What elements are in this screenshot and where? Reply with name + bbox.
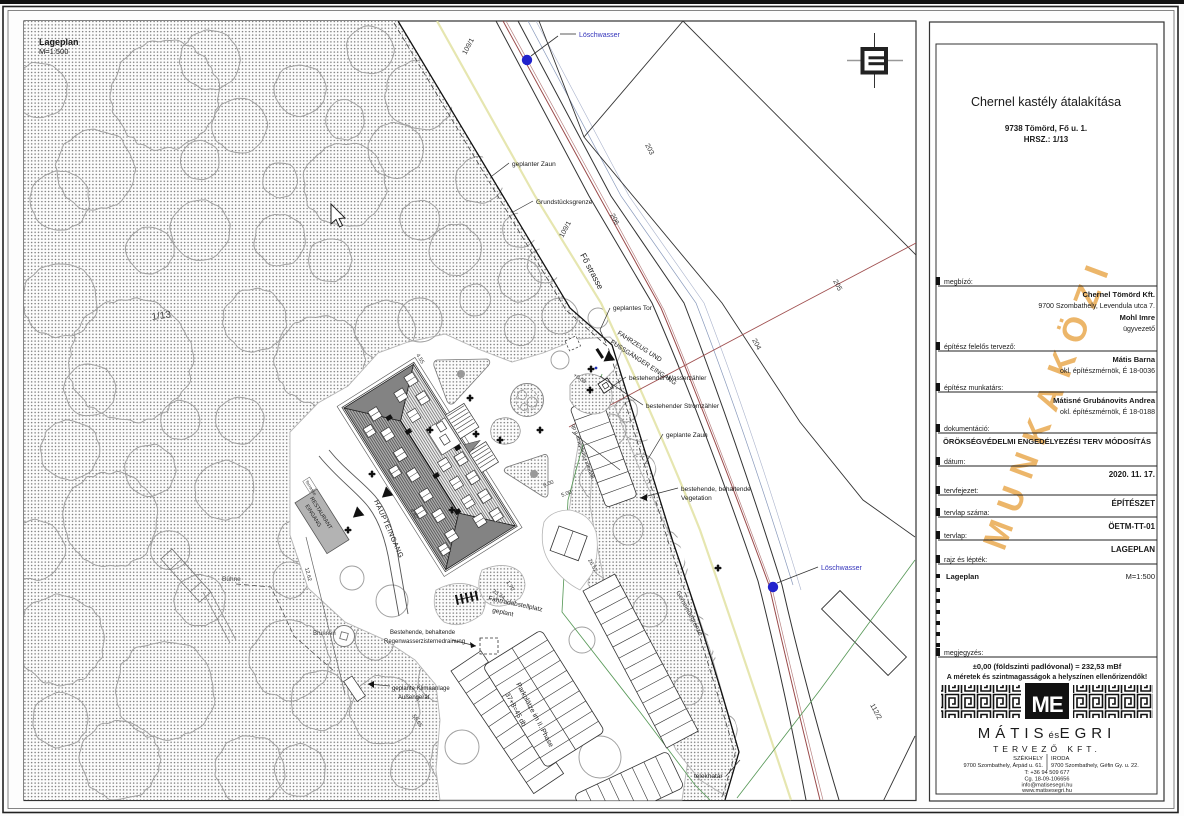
svg-text:tervfejezet:: tervfejezet: bbox=[944, 488, 978, 495]
svg-text:9700 Szombathely, Levendula ut: 9700 Szombathely, Levendula utca 7. bbox=[1038, 303, 1155, 310]
svg-text:2020. 11. 17.: 2020. 11. 17. bbox=[1109, 470, 1155, 479]
svg-text:építész felelős tervező:: építész felelős tervező: bbox=[944, 344, 1016, 351]
svg-text:bestehende, behaltende: bestehende, behaltende bbox=[681, 486, 751, 493]
svg-text:rajz és lépték:: rajz és lépték: bbox=[944, 557, 987, 564]
svg-text:TERVEZŐ KFT.: TERVEZŐ KFT. bbox=[993, 744, 1101, 754]
svg-text:Brunnen: Brunnen bbox=[313, 631, 336, 637]
svg-text:Mátis Barna: Mátis Barna bbox=[1112, 355, 1155, 364]
svg-text:bestehender Wasserzähler: bestehender Wasserzähler bbox=[629, 375, 707, 382]
svg-text:okl. építészmérnök, É 18-0036: okl. építészmérnök, É 18-0036 bbox=[1060, 366, 1155, 375]
svg-text:geplante Klimaanlage: geplante Klimaanlage bbox=[392, 686, 450, 692]
svg-text:Chernel Tömörd Kft.: Chernel Tömörd Kft. bbox=[1083, 290, 1156, 299]
svg-text:ME: ME bbox=[1032, 692, 1063, 717]
svg-text:ügyvezető: ügyvezető bbox=[1123, 326, 1155, 333]
svg-text:Bühne: Bühne bbox=[222, 576, 241, 583]
svg-text:A méretek és szintmagasságok a: A méretek és szintmagasságok a helyszíne… bbox=[947, 674, 1147, 681]
svg-text:tervlap:: tervlap: bbox=[944, 533, 967, 540]
svg-text:Löschwasser: Löschwasser bbox=[821, 565, 863, 572]
svg-text:megbízó:: megbízó: bbox=[944, 279, 973, 286]
svg-text:Lageplan: Lageplan bbox=[39, 37, 79, 47]
svg-text:Grundstücksgrenze: Grundstücksgrenze bbox=[536, 199, 593, 206]
svg-text:IRODA: IRODA bbox=[1051, 756, 1069, 762]
svg-text:bestehender Stromzähler: bestehender Stromzähler bbox=[646, 403, 720, 410]
svg-text:Lageplan: Lageplan bbox=[946, 572, 979, 581]
svg-text:Vegetation: Vegetation bbox=[681, 495, 712, 502]
svg-text:T: +36 94 509 677: T: +36 94 509 677 bbox=[1025, 770, 1070, 776]
svg-text:geplante Zaun: geplante Zaun bbox=[666, 432, 708, 439]
svg-text:Chernel kastély átalakítása: Chernel kastély átalakítása bbox=[971, 95, 1121, 109]
svg-text:Außengerät: Außengerät bbox=[398, 695, 430, 701]
svg-text:telekhatár: telekhatár bbox=[694, 773, 723, 780]
svg-text:±0,00 (földszinti padlóvonal): ±0,00 (földszinti padlóvonal) = 232,53 m… bbox=[973, 662, 1122, 671]
svg-text:dokumentáció:: dokumentáció: bbox=[944, 426, 990, 433]
svg-text:M=1:500: M=1:500 bbox=[1126, 572, 1155, 581]
svg-text:MÁTISésEGRI: MÁTISésEGRI bbox=[978, 725, 1117, 742]
svg-text:dátum:: dátum: bbox=[944, 459, 965, 466]
svg-text:9738 Tömörd, Fő u. 1.: 9738 Tömörd, Fő u. 1. bbox=[1005, 124, 1087, 133]
svg-text:ÖRÖKSÉGVÉDELMI ENGEDÉLYEZÉSI T: ÖRÖKSÉGVÉDELMI ENGEDÉLYEZÉSI TERV MÓDOSÍ… bbox=[943, 437, 1151, 446]
svg-text:9700 Szombathely, Árpád u. 61.: 9700 Szombathely, Árpád u. 61. bbox=[963, 762, 1043, 769]
svg-text:geplantes Tor: geplantes Tor bbox=[613, 305, 653, 312]
svg-text:Löschwasser: Löschwasser bbox=[579, 32, 621, 39]
svg-text:SZÉKHELY: SZÉKHELY bbox=[1013, 755, 1043, 762]
svg-text:építész munkatárs:: építész munkatárs: bbox=[944, 385, 1003, 392]
svg-text:okl. építészmérnök, É 18-0188: okl. építészmérnök, É 18-0188 bbox=[1060, 407, 1155, 416]
svg-text:M=1:500: M=1:500 bbox=[39, 47, 68, 56]
svg-text:Mohl Imre: Mohl Imre bbox=[1120, 313, 1155, 322]
svg-text:9700 Szombathely, Géfin Gy. u.: 9700 Szombathely, Géfin Gy. u. 22. bbox=[1051, 763, 1139, 769]
svg-text:ÖETM-TT-01: ÖETM-TT-01 bbox=[1108, 522, 1155, 531]
svg-text:geplanter Zaun: geplanter Zaun bbox=[512, 161, 556, 168]
svg-text:Bestehende, behaltende: Bestehende, behaltende bbox=[390, 630, 456, 636]
svg-text:Mátisné Grubánovits Andrea: Mátisné Grubánovits Andrea bbox=[1053, 396, 1156, 405]
svg-text:ÉPÍTÉSZET: ÉPÍTÉSZET bbox=[1111, 499, 1155, 508]
svg-text:www.matisesegri.hu: www.matisesegri.hu bbox=[1021, 788, 1072, 794]
svg-text:HRSZ.: 1/13: HRSZ.: 1/13 bbox=[1024, 135, 1069, 144]
svg-text:LAGEPLAN: LAGEPLAN bbox=[1111, 545, 1155, 554]
svg-text:tervlap száma:: tervlap száma: bbox=[944, 510, 990, 517]
svg-text:megjegyzés:: megjegyzés: bbox=[944, 650, 983, 657]
